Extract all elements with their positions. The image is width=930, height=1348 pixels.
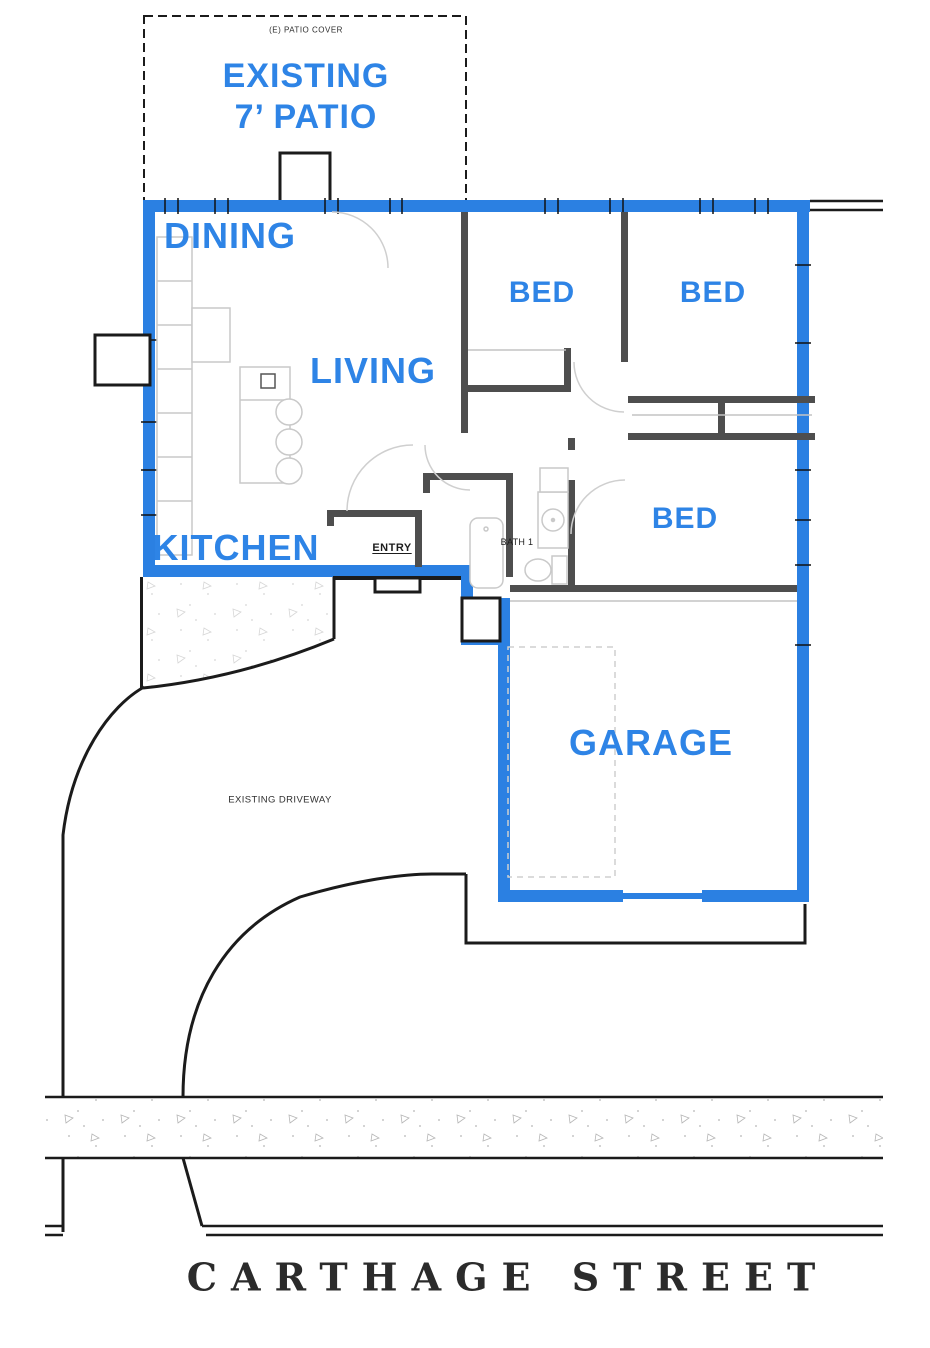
stool [276, 458, 302, 484]
interior-walls [327, 212, 815, 592]
entry-label: ENTRY [372, 542, 411, 554]
street-label: CARTHAGE STREET [187, 1255, 829, 1300]
room-label-garage: GARAGE [569, 722, 733, 764]
side-chimney [95, 335, 150, 385]
island-sink [261, 374, 275, 388]
wall-top [143, 200, 810, 212]
toilet-tank [552, 556, 567, 584]
patio-title-line1: EXISTING [223, 56, 390, 97]
garage-step [462, 598, 500, 641]
wall-left [143, 200, 155, 577]
room-label-dining: DINING [164, 215, 296, 257]
stool [276, 429, 302, 455]
driveway-label: EXISTING DRIVEWAY [228, 795, 331, 806]
bath-fixtures [470, 468, 568, 588]
porch-step [375, 578, 420, 592]
room-label-bed3: BED [652, 502, 718, 536]
linen-closet [540, 468, 568, 492]
room-label-bed1: BED [509, 276, 575, 310]
kitchen-fixtures [157, 237, 302, 555]
stool [276, 399, 302, 425]
toilet-bowl [525, 559, 551, 581]
room-label-kitchen: KITCHEN [153, 527, 320, 569]
fireplace-chimney [280, 153, 330, 203]
wall-right [797, 200, 809, 902]
patio-cover-label: (E) PATIO COVER [269, 26, 343, 35]
room-label-living: LIVING [310, 350, 436, 392]
floor-plan-drawing [0, 0, 930, 1348]
patio-title-line2: 7’ PATIO [223, 97, 390, 138]
floor-plan-canvas: (E) PATIO COVER EXISTING 7’ PATIO DINING… [0, 0, 930, 1348]
room-label-bed2: BED [680, 276, 746, 310]
patio-title: EXISTING 7’ PATIO [223, 56, 390, 138]
bath-label: BATH 1 [501, 537, 534, 547]
